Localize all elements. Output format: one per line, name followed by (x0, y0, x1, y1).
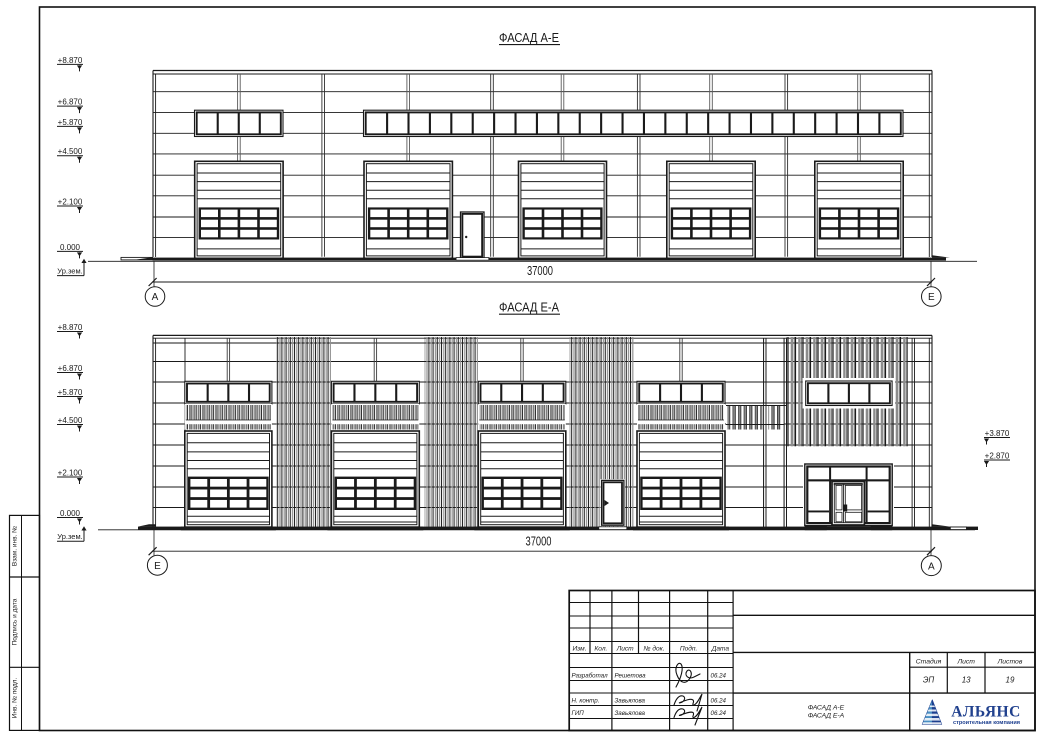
svg-text:Листов: Листов (997, 658, 1023, 665)
svg-text:+6.870: +6.870 (58, 98, 83, 107)
svg-text:+5.870: +5.870 (58, 118, 83, 127)
svg-text:+2.100: +2.100 (58, 469, 83, 478)
svg-text:+5.870: +5.870 (58, 388, 83, 397)
svg-text:+4.500: +4.500 (58, 416, 83, 425)
svg-text:0.000: 0.000 (60, 509, 81, 518)
svg-text:Кол.: Кол. (594, 645, 607, 652)
svg-text:Взам. инв. №: Взам. инв. № (12, 526, 19, 566)
svg-text:А: А (152, 292, 159, 303)
svg-text:06.24: 06.24 (711, 672, 727, 679)
svg-text:№ док.: № док. (643, 644, 664, 652)
svg-text:ФАСАД А-Е: ФАСАД А-Е (808, 704, 845, 711)
svg-text:Лист: Лист (616, 645, 634, 652)
svg-text:Подпись и дата: Подпись и дата (12, 598, 19, 645)
svg-text:+8.870: +8.870 (58, 323, 83, 332)
svg-text:Подп.: Подп. (680, 644, 698, 652)
svg-text:Н. контр.: Н. контр. (572, 697, 600, 704)
svg-text:37000: 37000 (527, 263, 553, 278)
svg-text:Лист: Лист (956, 658, 975, 665)
svg-text:19: 19 (1006, 676, 1015, 685)
svg-text:А: А (928, 561, 935, 572)
svg-text:ЭП: ЭП (923, 676, 935, 685)
svg-text:Е: Е (928, 292, 935, 303)
svg-text:Разработал: Разработал (572, 672, 609, 679)
svg-text:+6.870: +6.870 (58, 364, 83, 373)
svg-text:Е: Е (154, 561, 161, 572)
svg-text:06.24: 06.24 (711, 710, 727, 717)
svg-text:+8.870: +8.870 (58, 56, 83, 65)
svg-text:13: 13 (962, 676, 971, 685)
svg-text:Дата: Дата (711, 645, 730, 652)
svg-text:АЛЬЯНС: АЛЬЯНС (951, 704, 1021, 721)
svg-text:Ур.зем.: Ур.зем. (57, 267, 82, 276)
svg-text:Завьялова: Завьялова (615, 710, 646, 717)
svg-text:+2.870: +2.870 (985, 452, 1010, 461)
svg-text:+4.500: +4.500 (58, 147, 83, 156)
svg-text:строительная компания: строительная компания (953, 720, 1020, 726)
svg-text:37000: 37000 (526, 533, 552, 548)
svg-text:+2.100: +2.100 (58, 198, 83, 207)
svg-text:ФАСАД А-Е: ФАСАД А-Е (499, 31, 559, 45)
svg-text:Завьялова: Завьялова (615, 697, 646, 704)
svg-text:0.000: 0.000 (60, 243, 81, 252)
svg-text:Стадия: Стадия (916, 657, 942, 665)
svg-text:+3.870: +3.870 (985, 429, 1010, 438)
svg-text:Изм.: Изм. (572, 645, 586, 652)
svg-text:ГИП: ГИП (572, 710, 585, 717)
svg-text:ФАСАД Е-А: ФАСАД Е-А (808, 713, 845, 720)
svg-text:ФАСАД Е-А: ФАСАД Е-А (499, 301, 560, 315)
svg-text:Решетова: Решетова (615, 672, 647, 679)
svg-text:Ур.зем.: Ур.зем. (57, 532, 82, 541)
svg-text:06.24: 06.24 (711, 697, 727, 704)
svg-text:Инв. № подл.: Инв. № подл. (12, 678, 19, 719)
